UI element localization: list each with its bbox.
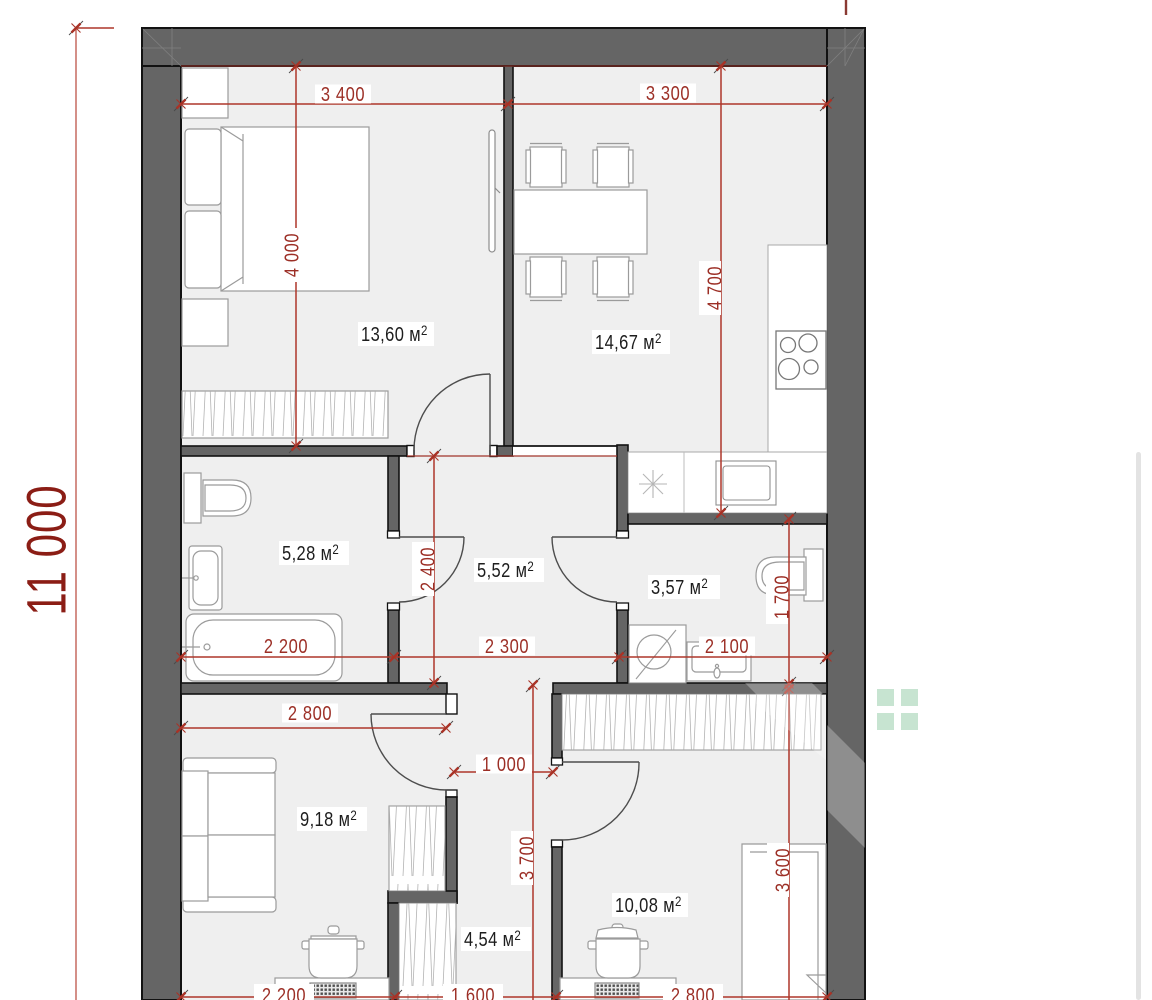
svg-text:5,28 м2: 5,28 м2 [282, 541, 339, 565]
svg-text:1 000: 1 000 [482, 752, 526, 775]
svg-text:3 700: 3 700 [514, 836, 537, 880]
svg-text:2 100: 2 100 [705, 634, 749, 657]
svg-text:2 800: 2 800 [288, 701, 332, 724]
svg-text:2 800: 2 800 [671, 983, 715, 1000]
svg-text:2 400: 2 400 [415, 547, 438, 591]
svg-text:1 700: 1 700 [769, 575, 792, 619]
svg-text:10,08 м2: 10,08 м2 [615, 893, 682, 917]
svg-text:3 400: 3 400 [321, 82, 365, 105]
svg-text:14,67 м2: 14,67 м2 [595, 330, 662, 354]
svg-text:2 200: 2 200 [262, 983, 306, 1000]
svg-text:4 700: 4 700 [702, 266, 725, 310]
svg-text:2 300: 2 300 [485, 634, 529, 657]
svg-text:11 000: 11 000 [16, 484, 78, 615]
svg-text:1 600: 1 600 [451, 983, 495, 1000]
svg-text:13,60 м2: 13,60 м2 [361, 322, 428, 346]
svg-text:2 200: 2 200 [264, 634, 308, 657]
svg-text:4 000: 4 000 [279, 233, 302, 277]
svg-text:3 300: 3 300 [646, 81, 690, 104]
svg-text:5,52 м2: 5,52 м2 [477, 558, 534, 582]
svg-text:4,54 м2: 4,54 м2 [464, 927, 521, 951]
svg-text:3 600: 3 600 [770, 848, 793, 892]
svg-text:3,57 м2: 3,57 м2 [651, 575, 708, 599]
svg-text:9,18 м2: 9,18 м2 [300, 807, 357, 831]
